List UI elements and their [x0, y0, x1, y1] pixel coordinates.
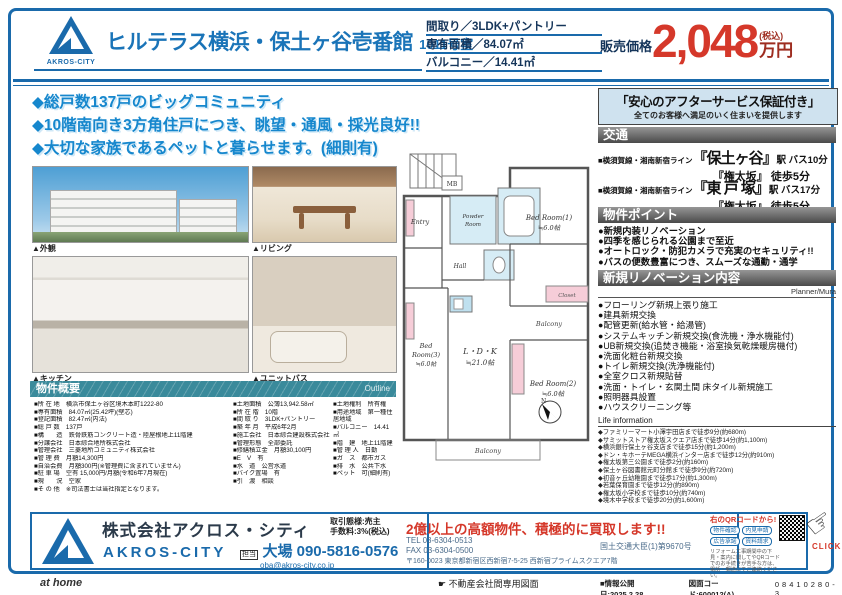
life-item: ◆ファミリーマート小澤宇田店まで徒歩9分(約680m): [598, 429, 836, 437]
publication-date: ■情報公開日:2025.2.28: [600, 578, 675, 595]
flyer-page: AKROS-CITY ヒルテラス横浜・保土ヶ谷壱番館1011号室 間取り／3LD…: [0, 0, 842, 595]
outline-col3: ■土地権利 所有権 ■用途地域 第一種住居地域 ■バルコニー 14.41㎡ ■階…: [333, 401, 395, 478]
bed3-label-1: Bed: [419, 342, 433, 350]
north-label: N: [541, 398, 546, 405]
price-label: 販売価格: [600, 36, 652, 55]
outline-row: ■総 戸 数 137戸: [34, 424, 230, 432]
outline-col2: ■土地面積 公簿13,942.58㎡ ■所 在 階 10階 ■間 取 り 3LD…: [233, 401, 330, 486]
aftercare-box: 「安心のアフターサービス保証付き」 全てのお客様へ満足のいく住まいを提供します: [598, 88, 838, 125]
hall-label: Hall: [453, 263, 467, 270]
renovation-band: 新規リノベーション内容: [598, 270, 836, 286]
renovation-item: ●全室クロス新規貼替: [598, 371, 836, 381]
outline-title: 物件概要: [36, 381, 80, 397]
renovation-item: ●トイレ新規交換(洗浄機能付): [598, 361, 836, 371]
renovation-item: ●配管更新(給水管・給湯管): [598, 320, 836, 330]
renovation-item: ●ハウスクリーニング等: [598, 402, 836, 412]
spec-menseki: 専有面積／84.07㎡: [426, 36, 602, 54]
point-item: ●バスの便数豊富につき、スムーズな通勤・通学: [598, 257, 836, 267]
contact-block: 担当 大場 090-5816-0576 oba@akros-city.co.jp: [240, 540, 398, 570]
caption-living: ▲リビング: [252, 243, 292, 254]
bed2-size: ≒6.0帖: [542, 390, 566, 398]
footer-company-name-en: AKROS-CITY: [103, 544, 226, 561]
hand-doodle-icon: ☛: [438, 579, 446, 589]
contact-role-label: 担当: [240, 550, 258, 560]
floorplan-svg: MB Balcony Balcony Entry Powder Room Hal…: [398, 148, 595, 466]
closet-label: Closet: [558, 293, 576, 299]
qr-button-koukoku[interactable]: 広告承諾: [710, 537, 740, 546]
outline-col1: ■所 在 地 横浜市保土ヶ谷区境木本町1222-80 ■専有面積 84.07㎡(…: [34, 401, 230, 493]
header-rule-thick: [13, 79, 829, 82]
outline-row: ■施工会社 日本綜合建設株式会社: [233, 432, 330, 440]
qr-lead-text: 右のQRコードから!: [710, 514, 776, 525]
life-info-title: Life information: [598, 416, 836, 427]
points-band: 物件ポイント: [598, 207, 836, 223]
bed2-label: Bed Room(2): [529, 380, 577, 388]
renovation-item: ●洗面・トイレ・玄関土間 床タイル新規施工: [598, 382, 836, 392]
qr-note: リフォーム工事期間中の下見・案内に関してやQRコードでのお手続きが苦手な方は、電…: [710, 549, 782, 579]
ldk-size: ≒21.0帖: [466, 359, 495, 367]
brand-label: AKROS-CITY: [42, 59, 100, 66]
point-item: ●オートロック・防犯カメラで充実のセキュリティ!!: [598, 246, 836, 256]
outline-row: ■バルコニー 14.41㎡: [333, 424, 395, 439]
outline-row: ■現 況 空家: [34, 478, 230, 486]
click-label: CLICK: [812, 542, 841, 551]
outline-row: ■築 年 月 平成6年2月: [233, 424, 330, 432]
caption-exterior: ▲外観: [32, 243, 56, 254]
license-number: 国土交通大臣(1)第9670号: [600, 541, 692, 552]
outline-row: ■バイク置場 有: [233, 470, 330, 478]
outline-row: ■ペット 可(細則有): [333, 470, 395, 478]
qr-buttons: 物件確認 内見申請 広告承諾 資料請求: [710, 526, 774, 546]
outline-title-en: Outline: [365, 381, 390, 397]
outline-row: ■修繕積立金 月額30,100円: [233, 447, 330, 455]
outline-band: 物件概要 Outline: [30, 381, 396, 397]
contact-email[interactable]: oba@akros-city.co.jp: [260, 561, 398, 570]
outline-row: ■そ の 他 ※司法書士は当社指定となります。: [34, 486, 230, 494]
outline-row: ■土地面積 公簿13,942.58㎡: [233, 401, 330, 409]
renovation-item: ●照明器具設置: [598, 392, 836, 402]
hedge-shape: [33, 232, 248, 243]
outline-row: ■管理会社 三菱地所コミュニティ株式会社: [34, 447, 230, 455]
outline-row: ■管 理 人 日勤: [333, 447, 395, 455]
floorplan: MB Balcony Balcony Entry Powder Room Hal…: [398, 148, 595, 466]
balcony-east-label: Balcony: [535, 320, 562, 328]
office-fax: FAX 03-6304-0500: [406, 546, 617, 556]
publication-info: ■情報公開日:2025.2.28 図面コード:600012(A) 0841028…: [600, 578, 842, 595]
bed3-closet: [406, 303, 414, 339]
deal-fee: 手数料:3%(税込): [330, 527, 390, 537]
bathtub-shape: [270, 331, 346, 363]
life-item: ◆横浜銀行保土ヶ谷支店まで徒歩15分(約1,200m): [598, 444, 836, 452]
drawing-code: 図面コード:600012(A): [689, 578, 761, 595]
drawing-number: 08410280-3: [775, 580, 842, 595]
outline-row: ■土地権利 所有権: [333, 401, 395, 409]
outline-row: ■所 在 階 10階: [233, 409, 330, 417]
sheet-type-label: ☛ 不動産会社間専用図面: [438, 577, 539, 590]
table-leg-shape-2: [345, 213, 351, 230]
station-name: 『保土ヶ谷』: [693, 150, 777, 167]
planner-credit: Planner/Mura: [598, 287, 836, 298]
mb-label: MB: [447, 181, 458, 188]
outline-row: ■間 取 り 3LDK+パントリー: [233, 416, 330, 424]
table-leg-shape: [299, 213, 305, 230]
outline-row: ■登記面積 82.47㎡(内法): [34, 416, 230, 424]
outline-row: ■階 建 地上11階建: [333, 440, 395, 448]
outline-row: ■管理形態 全部委託: [233, 440, 330, 448]
spec-balcony: バルコニー／14.41㎡: [426, 54, 602, 72]
akros-triangle-icon: [49, 16, 93, 54]
company-logo: AKROS-CITY: [42, 16, 100, 66]
life-item: ◆若葉保育園まで徒歩12分(約890m): [598, 482, 836, 490]
building-name: ヒルテラス横浜・保土ヶ谷壱番館: [106, 31, 413, 54]
office-tel: TEL 03-6304-0513: [406, 536, 617, 546]
header-rule-thin: [13, 85, 829, 86]
access-band: 交通: [598, 127, 836, 143]
powder-label-2: Room: [464, 222, 481, 228]
deal-type: 取引態様:売主: [330, 517, 390, 527]
outline-row: ■ガ ス 都市ガス: [333, 455, 395, 463]
powder-label-1: Powder: [462, 214, 484, 220]
unitbath-photo: [252, 256, 397, 373]
renovation-item: ●UB新規交換(追焚き機能・浴室換気乾燥暖房機付): [598, 341, 836, 351]
kitchen-photo: [32, 256, 249, 373]
aftercare-title: 「安心のアフターサービス保証付き」: [599, 91, 837, 110]
rail-line-label: ■横須賀線・湘南新宿ライン: [598, 156, 693, 165]
outline-row: ■専有面積 84.07㎡(25.42坪)(壁芯): [34, 409, 230, 417]
living-photo: [252, 166, 397, 243]
outline-row: ■構 造 鉄骨鉄筋コンクリート造・陸屋根地上11階建: [34, 432, 230, 440]
sink-bowl-icon: [454, 299, 463, 309]
bed1-label: Bed Room(1): [525, 214, 573, 222]
outline-row: ■駐 車 場 空有 15,000円/月額(令和6年7月現在): [34, 470, 230, 478]
outline-row: ■所 在 地 横浜市保土ヶ谷区境木本町1222-80: [34, 401, 230, 409]
aftercare-subtitle: 全てのお客様へ満足のいく住まいを提供します: [599, 110, 837, 121]
bed1-size: ≒6.0帖: [538, 224, 562, 232]
price-amount: 2,048: [652, 22, 757, 61]
office-address: 〒160-0023 東京都新宿区西新宿7-5-25 西新宿プライムスクエア7階: [406, 556, 617, 566]
highlight-2: ◆10階南向き3方角住戸につき、眺望・通風・採光良好!!: [32, 114, 420, 137]
outline-row: ■管 理 費 月額14,300円: [34, 455, 230, 463]
point-item: ●新規内装リノベーション: [598, 226, 836, 236]
buyback-headline: 2億以上の高額物件、積極的に買取します!!: [406, 518, 666, 538]
powder-room-area: [450, 196, 496, 244]
highlight-1: ◆総戸数137戸のビッグコミュニティ: [32, 91, 420, 114]
access-mode: 駅 バス10分: [777, 155, 828, 166]
life-item: ◆保土ヶ谷図書館元町分館まで徒歩9分(約720m): [598, 467, 836, 475]
ldk-label: L・D・K: [462, 347, 498, 356]
rail-line-label: ■横須賀線・湘南新宿ライン: [598, 186, 693, 195]
entry-label: Entry: [410, 218, 430, 226]
points-list: ●新規内装リノベーション ●四季を感じられる公園まで至近 ●オートロック・防犯カ…: [598, 226, 836, 267]
life-info-list: ◆ファミリーマート小澤宇田店まで徒歩9分(約680m) ◆サミットストア権太坂ス…: [598, 429, 836, 505]
access-mode: 駅 バス17分: [769, 185, 820, 196]
bed3-size: ≒6.0帖: [416, 360, 438, 368]
outline-row: ■用途地域 第一種住居地域: [333, 409, 395, 424]
life-item: ◆権太坂第三公園まで徒歩2分(約160m): [598, 459, 836, 467]
contact-phone: 大場 090-5816-0576: [262, 543, 398, 560]
header-underline: [34, 69, 422, 71]
office-contacts: TEL 03-6304-0513 FAX 03-6304-0500 〒160-0…: [406, 536, 617, 566]
highlights: ◆総戸数137戸のビッグコミュニティ ◆10階南向き3方角住戸につき、眺望・通風…: [32, 91, 420, 160]
spec-list: 間取り／3LDK+パントリー 専有面積／84.07㎡ バルコニー／14.41㎡: [426, 18, 602, 72]
footer-company-name: 株式会社アクロス・シティ: [102, 517, 310, 541]
life-item: ◆境木中学校まで徒歩20分(約1,600m): [598, 497, 836, 505]
highlight-3: ◆大切な家族であるペットと暮らせます。(細則有): [32, 137, 420, 160]
renovation-list: ●フローリング新規上張り施工 ●建具新規交換 ●配管更新(給水管・給湯管) ●シ…: [598, 300, 836, 412]
outline-row: ■水 道 公営水道: [233, 463, 330, 471]
building-shape: [50, 190, 177, 236]
bed2-closet: [512, 344, 524, 394]
balcony-south-label: Balcony: [474, 447, 501, 455]
qr-button-naiken[interactable]: 内見申請: [742, 526, 772, 535]
toilet-icon: [493, 257, 505, 273]
qr-button-kakunin[interactable]: 物件確認: [710, 526, 740, 535]
outline-row: ■引 渡 相談: [233, 478, 330, 486]
exterior-photo: [32, 166, 249, 243]
outline-row: ■E V 有: [233, 455, 330, 463]
outline-row: ■排 水 公共下水: [333, 463, 395, 471]
page-title: ヒルテラス横浜・保土ヶ谷壱番館1011号室: [106, 26, 473, 56]
bed3-label-2: Room(3): [411, 351, 441, 359]
table-shape: [293, 206, 356, 213]
outline-row: ■分譲会社 日本綜合地所株式会社: [34, 440, 230, 448]
sheet-type-text: 不動産会社間専用図面: [449, 579, 539, 589]
station-name: 『東 戸 塚』: [693, 180, 769, 197]
building-shape-2: [179, 199, 237, 236]
footer-akros-triangle-icon: [42, 518, 94, 564]
spec-madori: 間取り／3LDK+パントリー: [426, 18, 602, 36]
deal-terms: 取引態様:売主 手数料:3%(税込): [330, 517, 390, 537]
renovation-item: ●建具新規交換: [598, 310, 836, 320]
renovation-item: ●洗面化粧台新規交換: [598, 351, 836, 361]
price-block: 販売価格 2,048 (税込) 万円: [600, 22, 832, 61]
point-item: ●四季を感じられる公園まで至近: [598, 236, 836, 246]
renovation-item: ●システムキッチン新規交換(食洗機・浄水機能付): [598, 331, 836, 341]
qr-button-shiryou[interactable]: 資料請求: [742, 537, 772, 546]
price-unit: 万円: [759, 42, 793, 59]
athome-logo: at home: [40, 577, 82, 589]
outline-row: ■自治会費 月額300円(※管理費に含まれていません): [34, 463, 230, 471]
renovation-item: ●フローリング新規上張り施工: [598, 300, 836, 310]
